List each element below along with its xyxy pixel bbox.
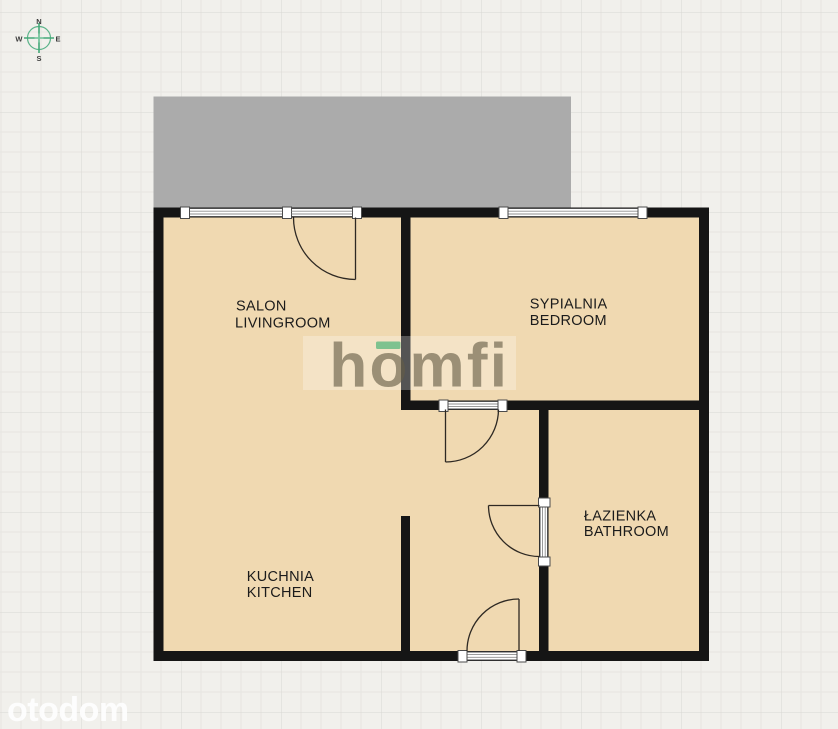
svg-text:S: S (36, 54, 41, 63)
svg-text:SALON: SALON (236, 298, 287, 314)
svg-text:otodom: otodom (7, 691, 129, 729)
svg-text:LIVINGROOM: LIVINGROOM (235, 315, 331, 331)
svg-text:BEDROOM: BEDROOM (530, 313, 607, 329)
svg-text:KUCHNIA: KUCHNIA (247, 569, 314, 585)
svg-text:KITCHEN: KITCHEN (247, 585, 313, 601)
svg-text:homfi: homfi (329, 332, 509, 401)
svg-text:ŁAZIENKA: ŁAZIENKA (584, 509, 657, 525)
svg-text:BATHROOM: BATHROOM (584, 524, 669, 540)
svg-text:SYPIALNIA: SYPIALNIA (530, 297, 608, 313)
svg-text:N: N (36, 17, 41, 26)
svg-text:W: W (15, 34, 23, 43)
svg-text:E: E (56, 34, 61, 43)
